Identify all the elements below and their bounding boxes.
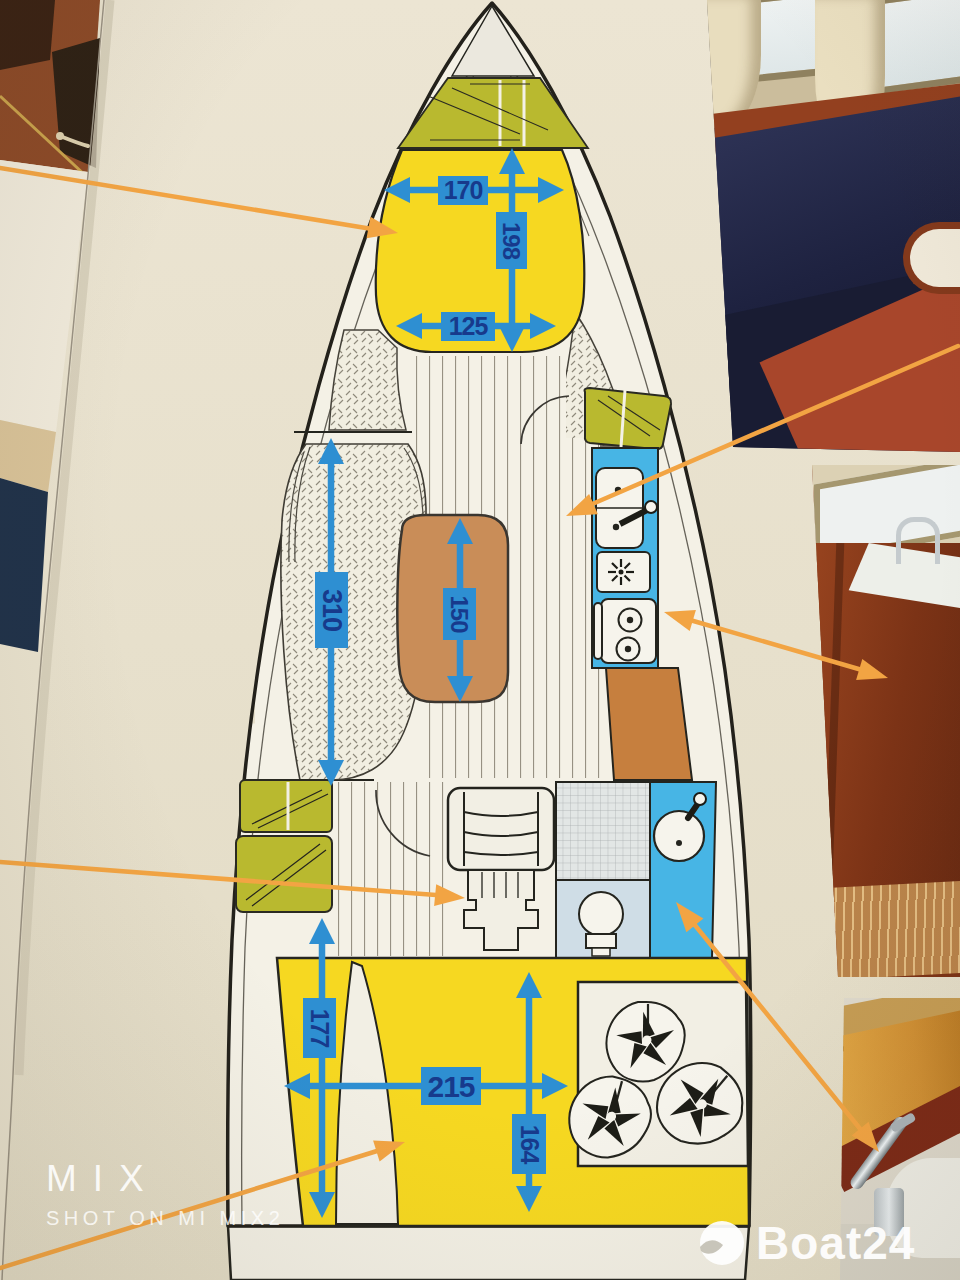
dim-label: 310 (317, 589, 347, 631)
nav-locker (585, 388, 672, 449)
dim-label: 215 (427, 1070, 474, 1103)
galley-aft-counter (606, 668, 692, 780)
galley-faucet (896, 517, 940, 564)
corridor-floor (336, 782, 448, 956)
fore-cabin-seat-left (329, 330, 406, 430)
boat24-logo: Boat24 (698, 1216, 915, 1270)
dim-label: 170 (444, 176, 483, 204)
photo-saloon (703, 0, 960, 456)
boat24-logo-text: Boat24 (756, 1216, 915, 1270)
camera-watermark-shotline: SHOT ON MI MIX2 (46, 1207, 284, 1230)
dim-v-berth-foot-width: 125 (396, 312, 556, 341)
washbasin-counter (650, 782, 716, 958)
companionway-steps (448, 788, 554, 870)
shower (556, 782, 650, 880)
camera-watermark-model: MIX (46, 1158, 284, 1200)
galley-burner (597, 552, 650, 592)
fender-locker (561, 982, 758, 1167)
toilet (579, 892, 623, 956)
galley-stove (594, 599, 656, 663)
transom (228, 1226, 749, 1280)
hanging-lockers (236, 780, 332, 912)
dim-label: 198 (498, 222, 525, 260)
dim-label: 125 (449, 312, 489, 340)
camera-watermark: MIX SHOT ON MI MIX2 (46, 1158, 284, 1230)
dim-label: 150 (446, 595, 473, 633)
dim-label: 164 (516, 1125, 544, 1165)
head-compartment (556, 782, 716, 958)
boat24-logo-icon (698, 1219, 746, 1267)
dim-label: 177 (306, 1009, 334, 1048)
